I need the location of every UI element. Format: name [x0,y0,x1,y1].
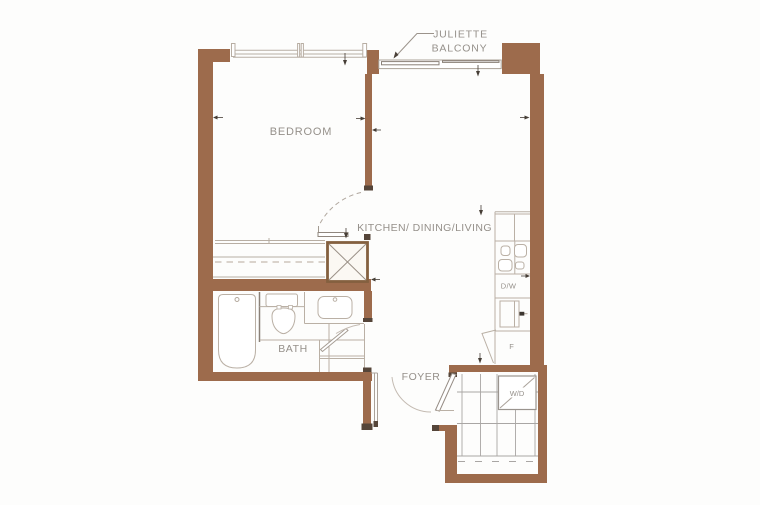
svg-text:BALCONY: BALCONY [432,43,488,55]
svg-text:BATH: BATH [278,343,308,355]
svg-text:F: F [509,342,514,351]
svg-text:BEDROOM: BEDROOM [270,126,332,138]
svg-text:D/W: D/W [501,282,517,291]
svg-text:JULIETTE: JULIETTE [433,29,488,41]
svg-text:FOYER: FOYER [402,371,441,383]
svg-text:KITCHEN/ DINING/LIVING: KITCHEN/ DINING/LIVING [357,222,492,234]
svg-text:W/D: W/D [510,389,525,398]
